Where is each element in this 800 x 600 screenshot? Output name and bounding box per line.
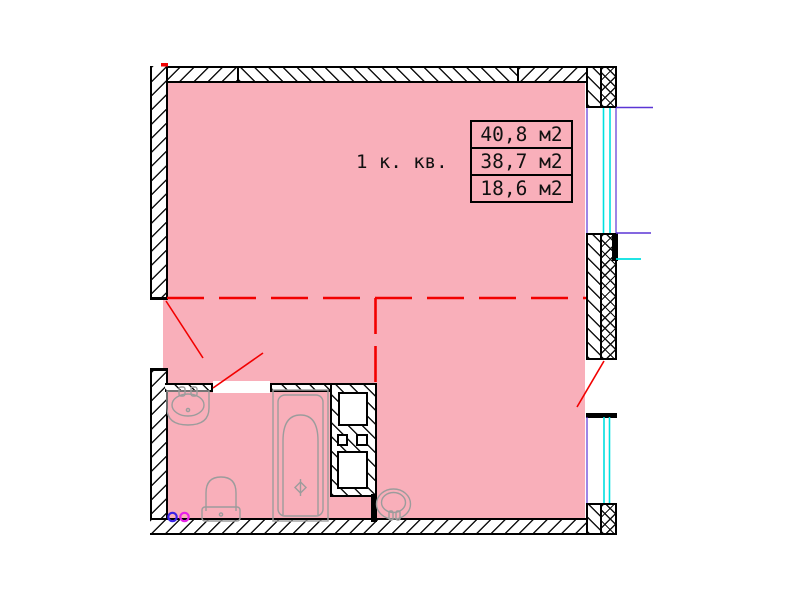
- duct-shaft: [330, 383, 377, 497]
- pier-outer-layer: [588, 68, 602, 106]
- window-pier-bottom: [586, 503, 617, 535]
- duct-box-large-top: [338, 392, 368, 426]
- partition-bathroom-right: [270, 383, 330, 392]
- area-room: 18,6 м2: [472, 174, 571, 201]
- wall-bottom: [150, 518, 617, 535]
- shaft-lower-wall: [371, 494, 377, 522]
- pier-outer-layer: [588, 235, 602, 358]
- wall-top-segment-middle: [237, 68, 519, 81]
- entry-doorway-floor: [163, 300, 168, 368]
- partition-bathroom-left: [165, 383, 213, 392]
- pier-outer-layer: [588, 505, 602, 533]
- floor-plan-canvas: 40,8 м2 38,7 м2 18,6 м2 1 к. кв.: [0, 0, 800, 600]
- wall-left-upper: [150, 66, 168, 300]
- duct-box-small-left: [337, 434, 348, 446]
- duct-box-large-bottom: [337, 451, 368, 489]
- balcony-window-sill: [586, 413, 617, 418]
- area-total: 40,8 м2: [472, 122, 571, 147]
- area-table: 40,8 м2 38,7 м2 18,6 м2: [470, 120, 573, 203]
- wall-left-lower: [150, 368, 168, 535]
- wall-top-segment-right: [519, 68, 590, 81]
- wall-top: [150, 66, 590, 83]
- pier-inner-layer: [602, 505, 615, 533]
- bathroom-door-gap: [213, 381, 270, 393]
- area-living-sum: 38,7 м2: [472, 147, 571, 174]
- balcony-wall-stub: [612, 233, 618, 261]
- window-bottom: [587, 417, 610, 503]
- room-label: 1 к. кв.: [356, 151, 448, 173]
- pier-inner-layer: [602, 68, 615, 106]
- window-pier-top: [586, 66, 617, 108]
- duct-box-small-right: [356, 434, 368, 446]
